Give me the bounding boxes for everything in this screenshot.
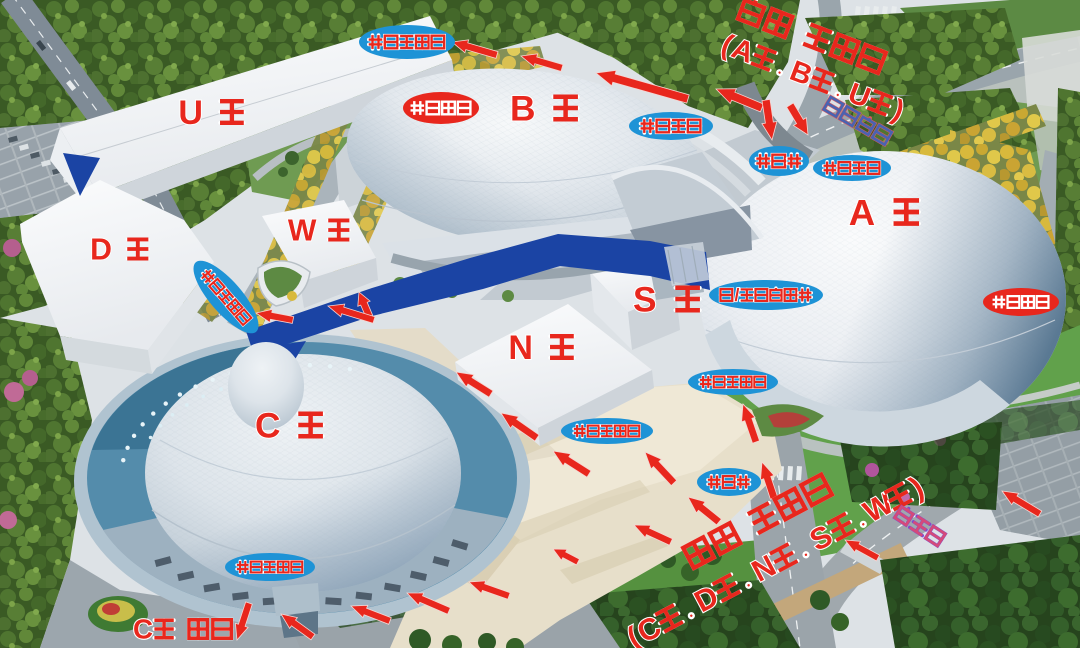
svg-text:B: B xyxy=(510,89,535,128)
svg-text:U: U xyxy=(178,94,203,132)
svg-text:W: W xyxy=(288,215,317,248)
svg-text:/: / xyxy=(734,285,739,305)
svg-text:S: S xyxy=(633,280,657,319)
svg-text:C: C xyxy=(255,406,280,445)
svg-text:D: D xyxy=(90,234,112,267)
svg-text:A: A xyxy=(849,192,875,233)
svg-text:N: N xyxy=(508,329,533,367)
svg-text:C: C xyxy=(133,614,153,645)
